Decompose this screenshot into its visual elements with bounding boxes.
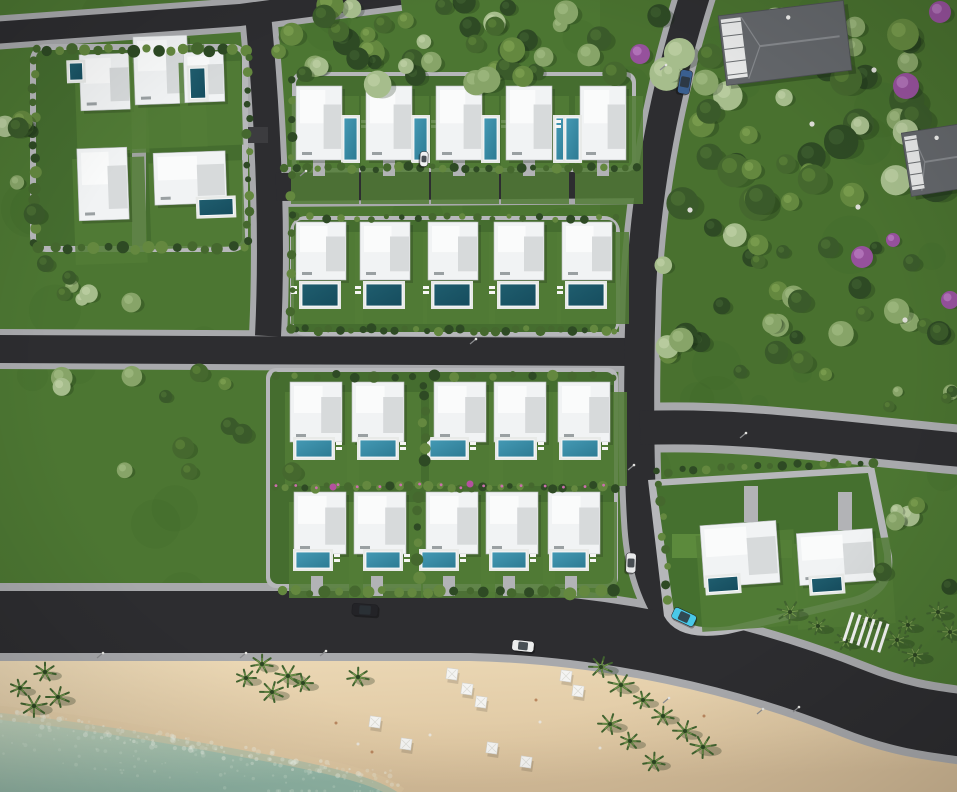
aerial-render-image [0, 0, 957, 792]
vignette-overlay [0, 0, 957, 792]
scene-canvas [0, 0, 957, 792]
